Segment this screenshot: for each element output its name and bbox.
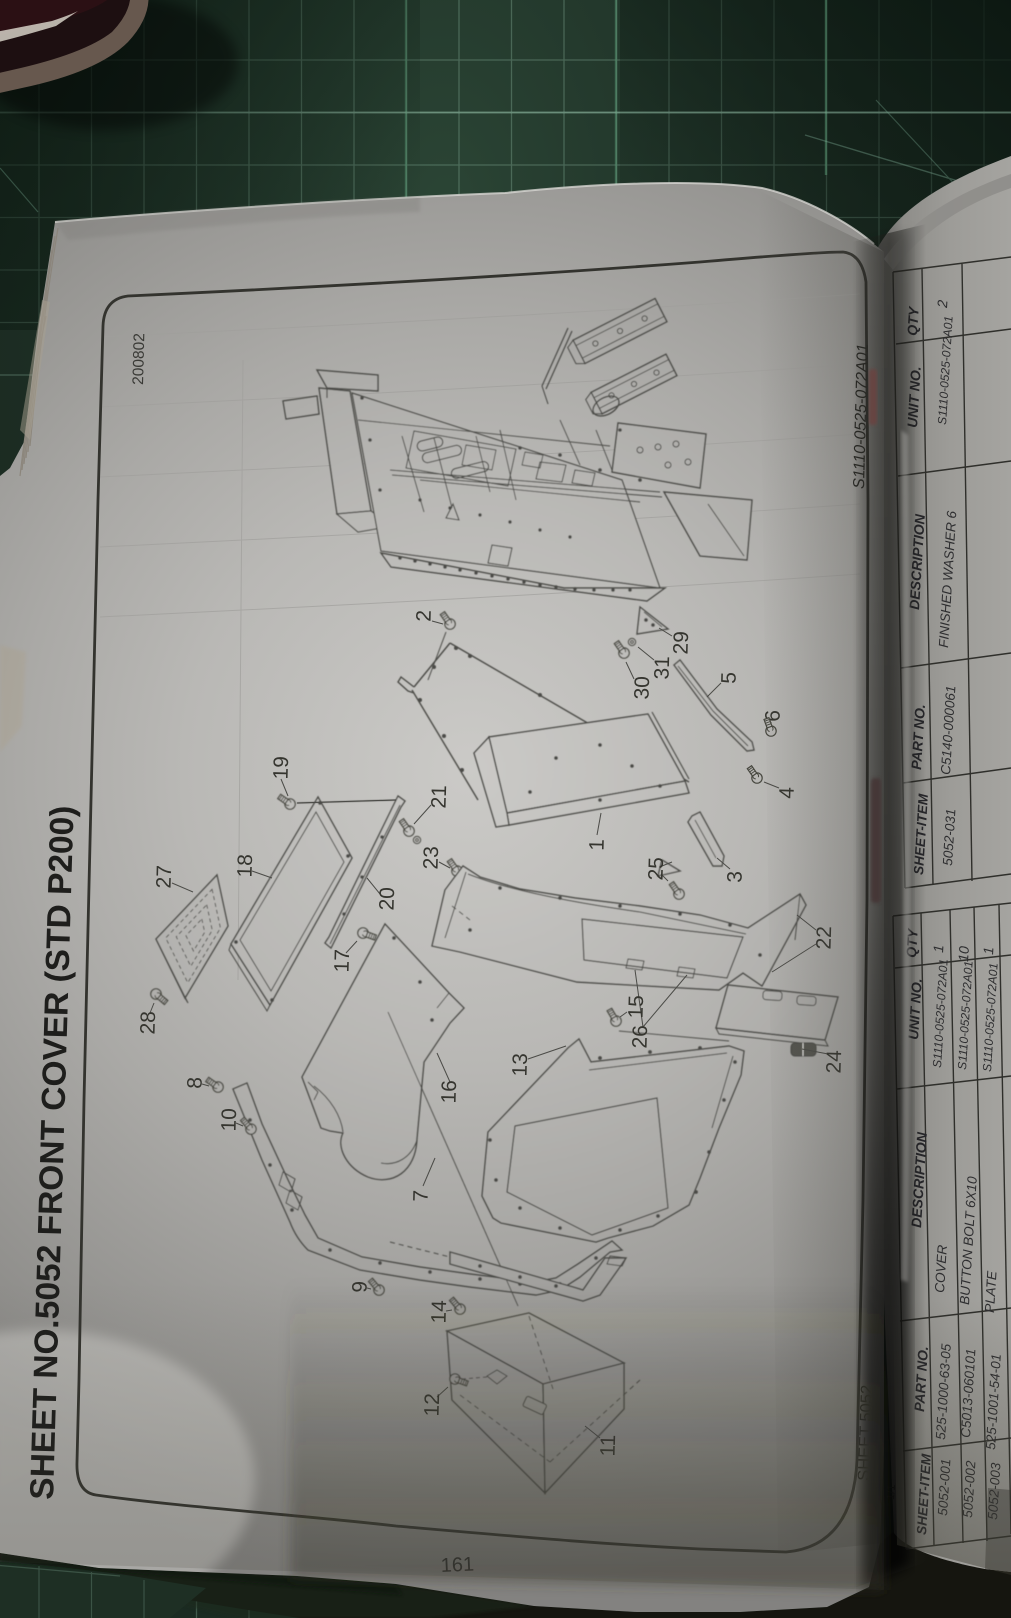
svg-text:200802: 200802 bbox=[130, 333, 148, 385]
svg-text:19: 19 bbox=[270, 756, 294, 780]
svg-text:7: 7 bbox=[410, 1190, 433, 1202]
svg-text:10: 10 bbox=[218, 1108, 242, 1132]
svg-text:20: 20 bbox=[376, 887, 400, 911]
svg-text:30: 30 bbox=[631, 676, 655, 700]
svg-text:3: 3 bbox=[724, 871, 747, 883]
svg-text:COVER: COVER bbox=[932, 1244, 950, 1293]
svg-text:1: 1 bbox=[586, 839, 609, 851]
svg-text:15: 15 bbox=[625, 995, 649, 1019]
svg-text:28: 28 bbox=[137, 1011, 161, 1035]
svg-text:23: 23 bbox=[420, 846, 444, 870]
svg-text:10: 10 bbox=[955, 945, 972, 962]
svg-text:16: 16 bbox=[438, 1080, 462, 1104]
svg-text:2: 2 bbox=[413, 610, 436, 622]
svg-text:13: 13 bbox=[509, 1053, 533, 1077]
svg-text:2: 2 bbox=[934, 299, 951, 309]
svg-text:31: 31 bbox=[651, 656, 675, 680]
svg-text:8: 8 bbox=[184, 1077, 207, 1089]
svg-text:1: 1 bbox=[980, 946, 996, 955]
svg-text:17: 17 bbox=[331, 949, 355, 973]
svg-text:25: 25 bbox=[645, 857, 669, 881]
svg-text:5: 5 bbox=[718, 672, 741, 684]
svg-text:18: 18 bbox=[234, 854, 258, 878]
svg-text:1: 1 bbox=[930, 944, 946, 953]
svg-text:21: 21 bbox=[428, 785, 452, 809]
svg-text:27: 27 bbox=[153, 865, 177, 889]
svg-text:26: 26 bbox=[629, 1025, 653, 1049]
svg-text:29: 29 bbox=[670, 631, 694, 655]
